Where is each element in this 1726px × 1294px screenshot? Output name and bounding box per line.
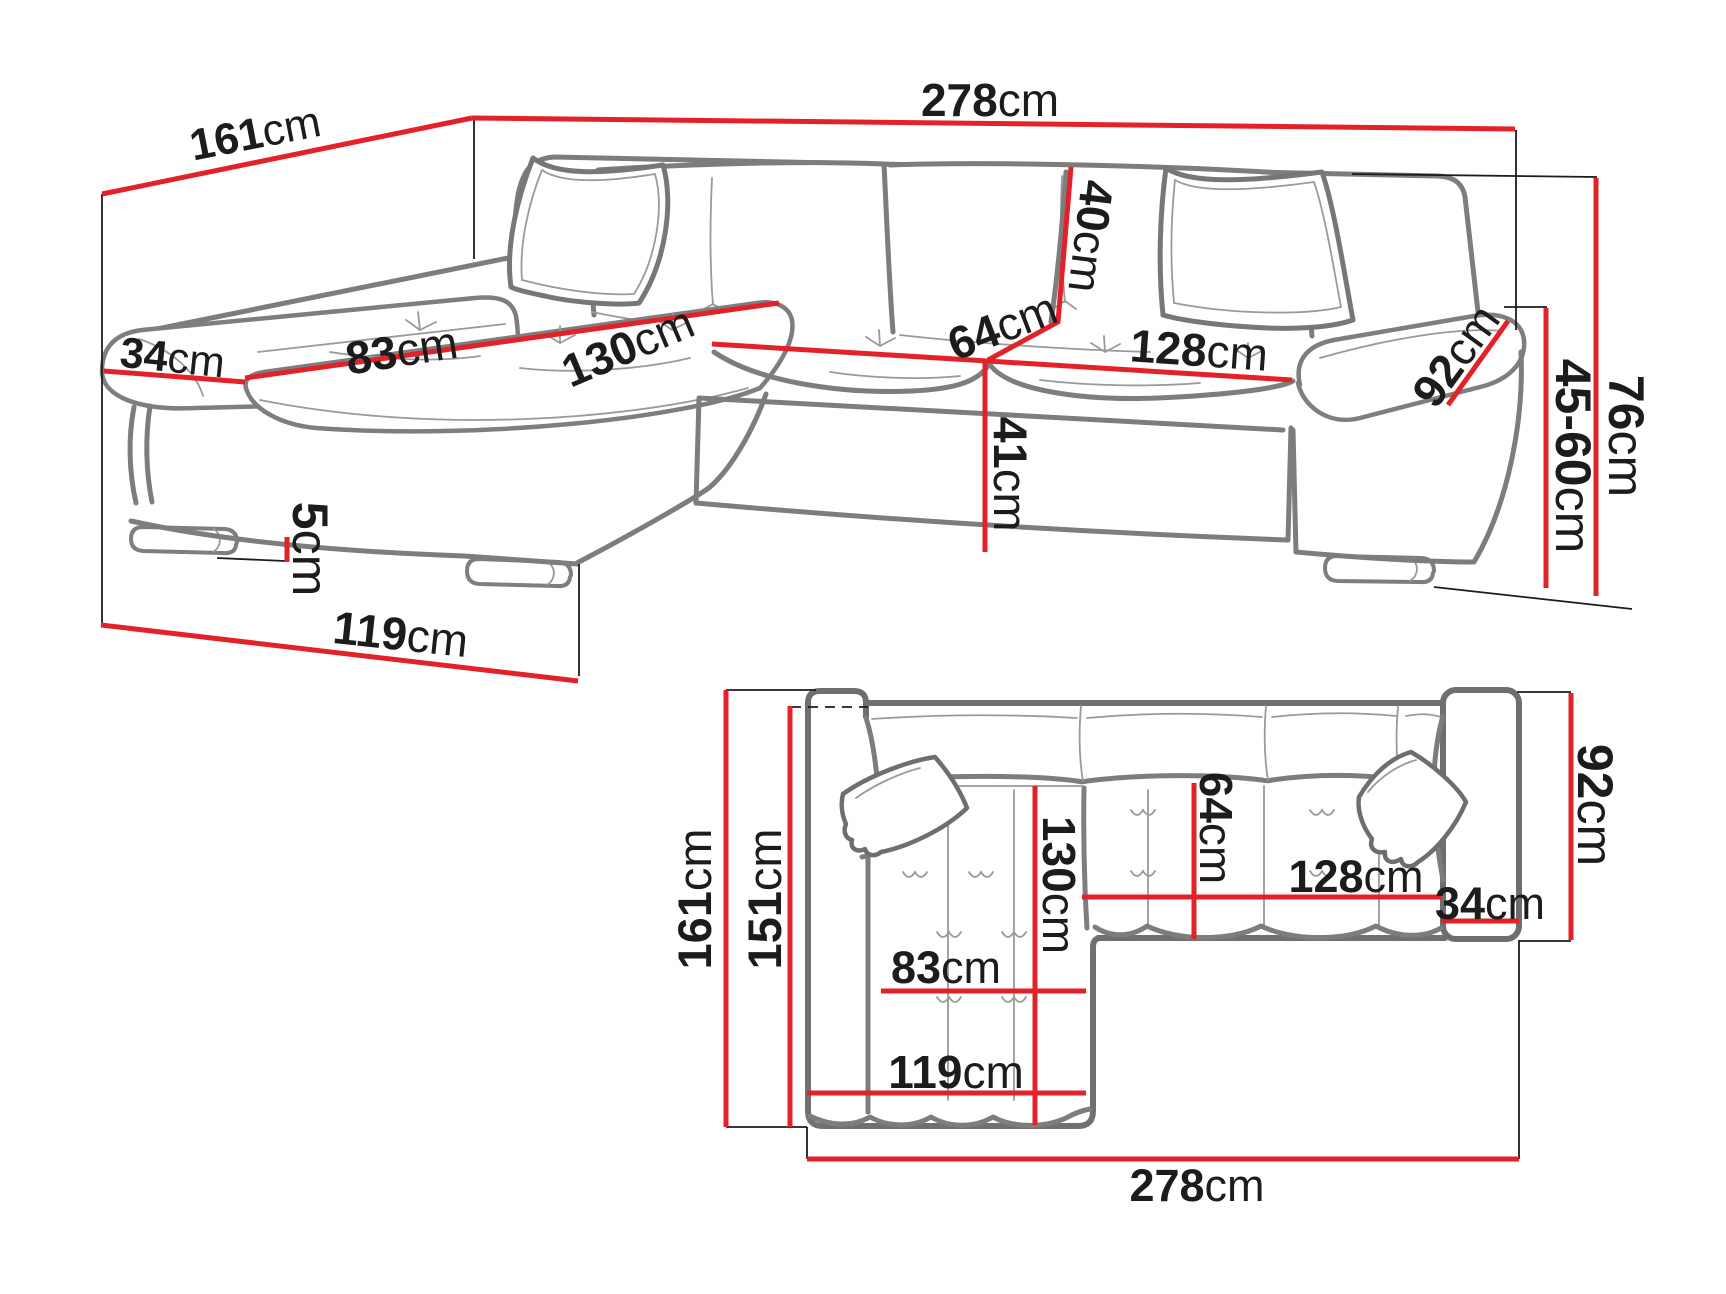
svg-text:92cm: 92cm bbox=[1567, 744, 1623, 866]
svg-text:64cm: 64cm bbox=[1190, 772, 1242, 885]
svg-text:278cm: 278cm bbox=[1129, 1160, 1264, 1211]
svg-text:128cm: 128cm bbox=[1128, 319, 1269, 381]
svg-text:5cm: 5cm bbox=[282, 502, 338, 596]
svg-text:128cm: 128cm bbox=[1288, 851, 1423, 902]
svg-text:83cm: 83cm bbox=[891, 942, 1001, 993]
svg-text:34cm: 34cm bbox=[1435, 878, 1545, 929]
svg-text:151cm: 151cm bbox=[738, 828, 791, 969]
svg-text:45-60cm: 45-60cm bbox=[1545, 359, 1601, 554]
svg-text:119cm: 119cm bbox=[888, 1046, 1024, 1098]
svg-text:41cm: 41cm bbox=[984, 417, 1037, 532]
svg-text:130cm: 130cm bbox=[1033, 816, 1085, 954]
svg-text:76cm: 76cm bbox=[1598, 375, 1654, 497]
svg-text:161cm: 161cm bbox=[668, 828, 721, 969]
svg-text:278cm: 278cm bbox=[921, 74, 1059, 126]
